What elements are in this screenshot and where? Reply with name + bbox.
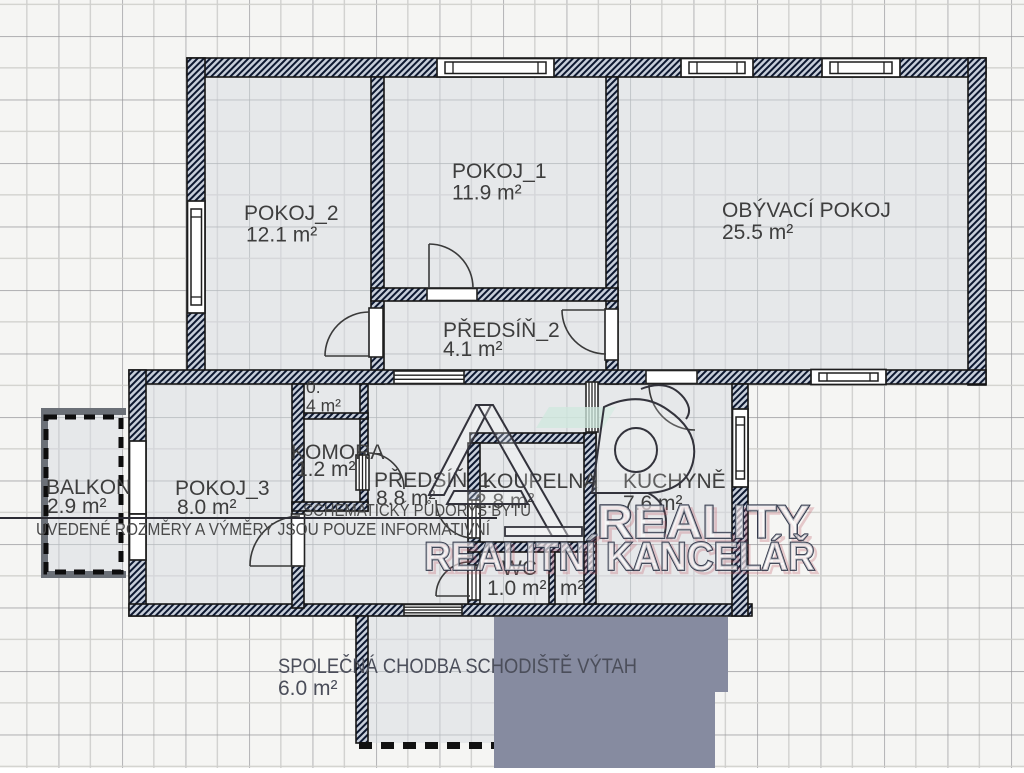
svg-text:4.1 m²: 4.1 m² — [443, 338, 503, 361]
svg-text:4 m²: 4 m² — [306, 396, 341, 416]
svg-text:25.5 m²: 25.5 m² — [722, 221, 793, 244]
svg-text:12.1 m²: 12.1 m² — [246, 224, 317, 247]
svg-text:POKOJ_1: POKOJ_1 — [452, 160, 547, 183]
svg-text:REALITNÍ KANCELÁŘ: REALITNÍ KANCELÁŘ — [424, 533, 815, 579]
svg-text:2.9 m²: 2.9 m² — [47, 495, 107, 518]
svg-text:11.9 m²: 11.9 m² — [452, 182, 522, 205]
svg-text:SPOLEČNÁ CHODBA SCHODIŠTĚ VÝTA: SPOLEČNÁ CHODBA SCHODIŠTĚ VÝTAH — [278, 655, 637, 678]
svg-text:8.0 m²: 8.0 m² — [177, 496, 237, 519]
svg-text:POKOJ_2: POKOJ_2 — [244, 202, 339, 225]
svg-text:UVEDENÉ ROZMĚRY A VÝMĚRY JSOU: UVEDENÉ ROZMĚRY A VÝMĚRY JSOU POUZE INFO… — [36, 519, 490, 539]
svg-text:0.: 0. — [306, 377, 321, 397]
svg-text:OBÝVACÍ POKOJ: OBÝVACÍ POKOJ — [722, 199, 891, 222]
svg-text:1.2 m²: 1.2 m² — [296, 458, 356, 481]
svg-text:6.0 m²: 6.0 m² — [278, 677, 338, 700]
